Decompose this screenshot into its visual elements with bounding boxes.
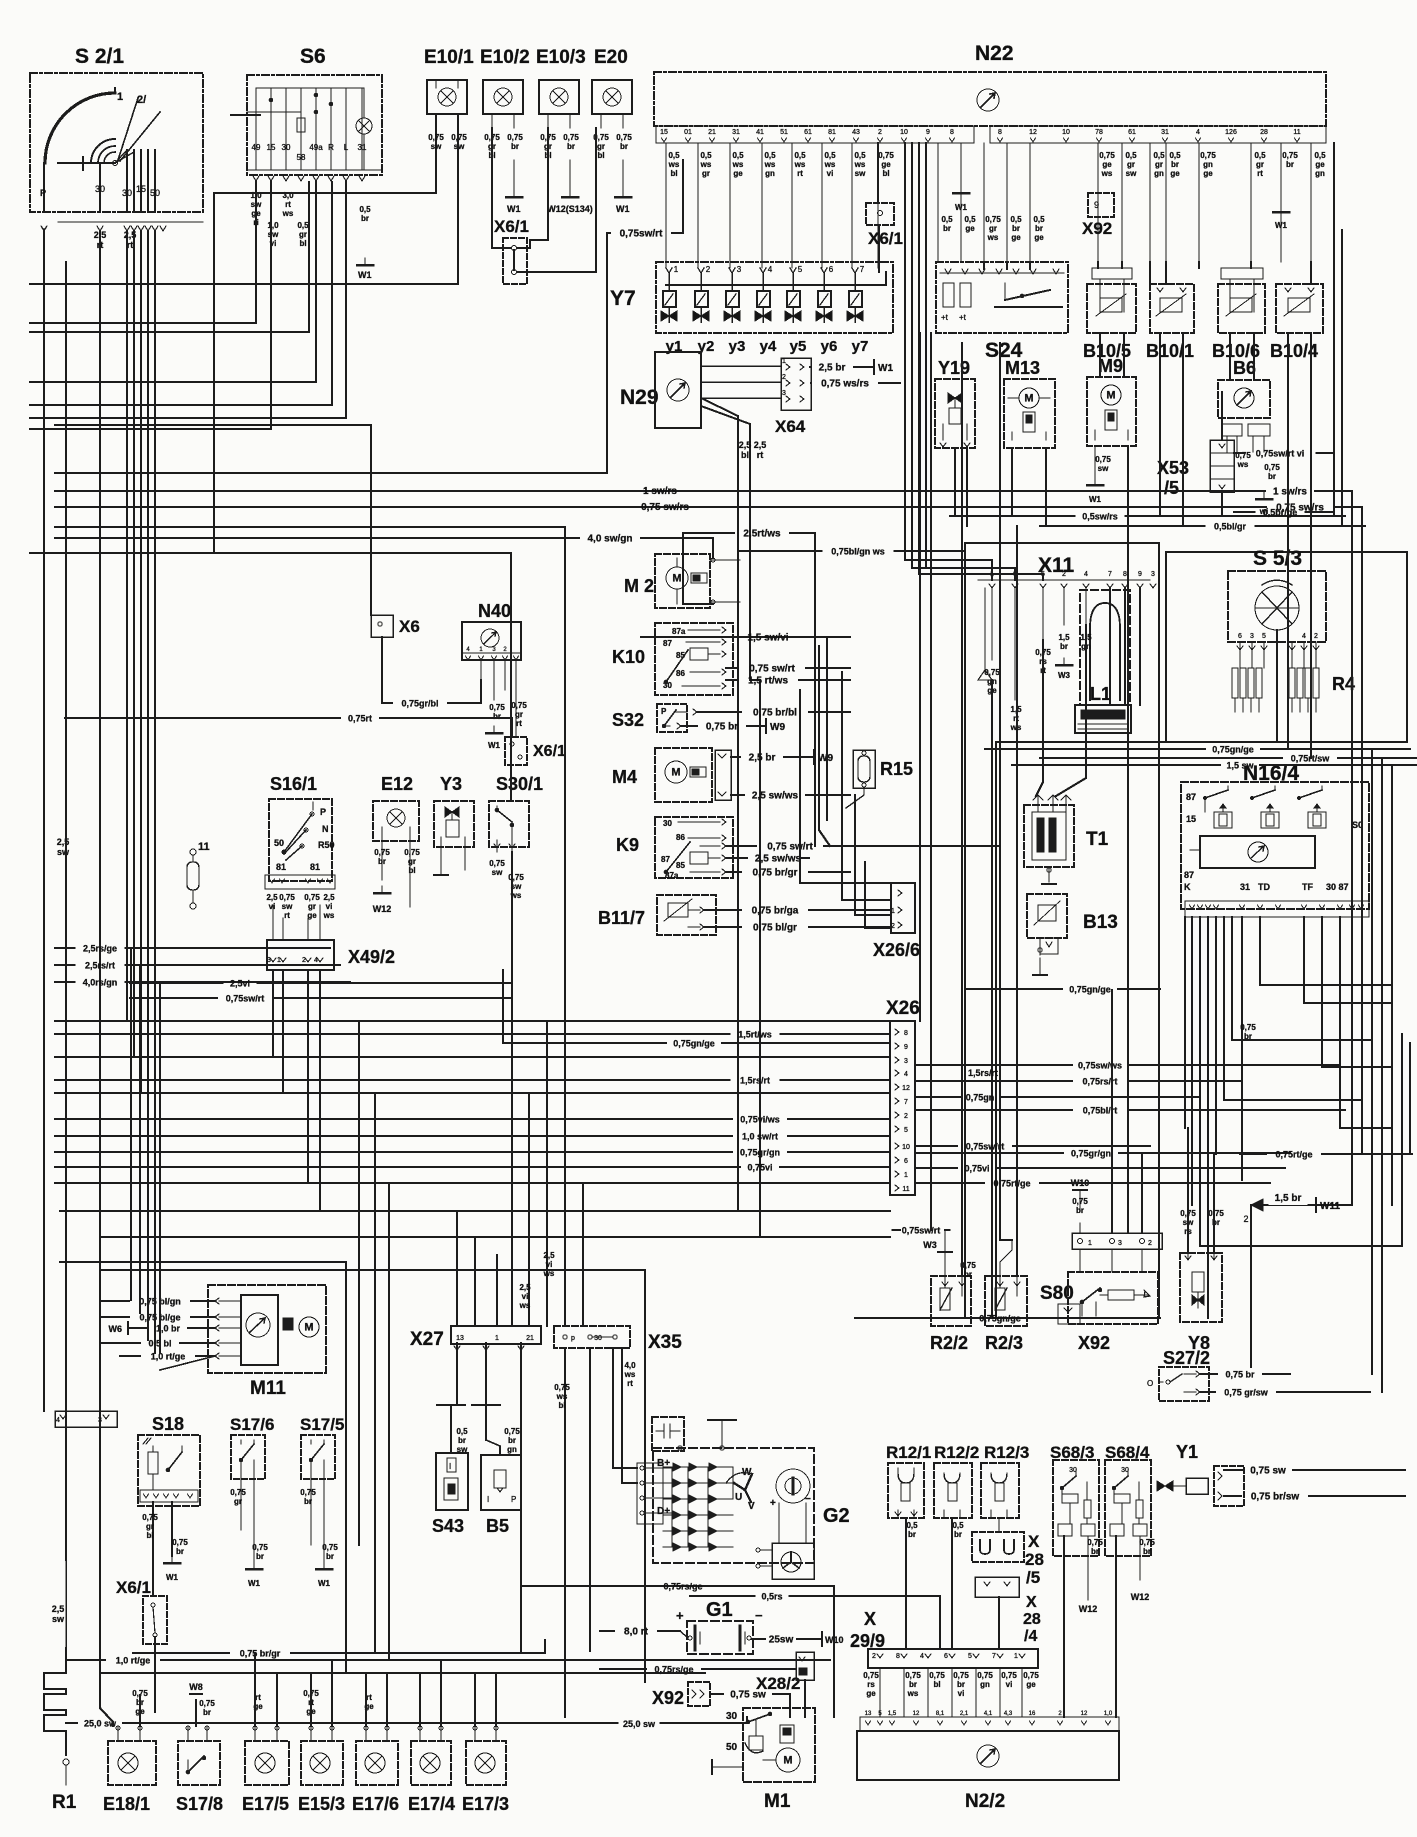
svg-text:0,75vi/ws: 0,75vi/ws xyxy=(740,1115,780,1125)
svg-text:87: 87 xyxy=(663,639,672,648)
svg-text:2,5rt/ws: 2,5rt/ws xyxy=(743,529,781,540)
svg-text:4,1: 4,1 xyxy=(984,1711,993,1717)
svg-text:ge: ge xyxy=(1026,1680,1036,1689)
svg-text:bl: bl xyxy=(146,1531,153,1540)
svg-text:0,75: 0,75 xyxy=(199,1699,215,1708)
svg-text:gr: gr xyxy=(1155,160,1163,169)
svg-text:3: 3 xyxy=(1151,571,1155,578)
svg-text:7: 7 xyxy=(904,1099,908,1106)
svg-text:28: 28 xyxy=(1023,1611,1041,1628)
svg-text:br: br xyxy=(1012,224,1020,233)
svg-text:M: M xyxy=(1024,393,1033,405)
svg-text:M1: M1 xyxy=(764,1791,791,1812)
svg-text:1: 1 xyxy=(277,957,281,964)
svg-text:0,5: 0,5 xyxy=(1033,215,1045,224)
svg-text:sw: sw xyxy=(282,902,293,911)
svg-text:0,75: 0,75 xyxy=(1200,151,1216,160)
svg-text:br: br xyxy=(1091,1547,1099,1556)
svg-text:ge: ge xyxy=(866,1689,876,1698)
svg-text:ws: ws xyxy=(1237,460,1249,469)
svg-text:9: 9 xyxy=(1138,571,1142,578)
svg-text:vi: vi xyxy=(827,169,834,178)
svg-text:bl: bl xyxy=(670,169,677,178)
svg-text:0,75: 0,75 xyxy=(428,133,444,142)
svg-text:ge: ge xyxy=(307,911,317,920)
svg-text:2,1: 2,1 xyxy=(960,1711,969,1717)
svg-text:0,75 sw: 0,75 sw xyxy=(730,1690,766,1701)
svg-text:2,5: 2,5 xyxy=(323,893,335,902)
svg-text:X6/1: X6/1 xyxy=(116,1578,151,1597)
svg-text:2,5 br: 2,5 br xyxy=(749,753,776,764)
svg-text:4: 4 xyxy=(466,647,470,653)
svg-text:W1: W1 xyxy=(507,204,521,214)
svg-text:0,75 sw: 0,75 sw xyxy=(1250,1466,1286,1477)
svg-text:0,5: 0,5 xyxy=(964,215,976,224)
svg-text:P: P xyxy=(320,807,326,817)
svg-text:0,5: 0,5 xyxy=(906,1521,918,1530)
svg-text:gr: gr xyxy=(597,142,605,151)
svg-text:1: 1 xyxy=(495,1335,499,1342)
svg-text:30: 30 xyxy=(122,188,132,198)
svg-text:5: 5 xyxy=(904,1127,908,1134)
svg-text:bl: bl xyxy=(408,866,415,875)
svg-text:ge: ge xyxy=(1203,169,1213,178)
svg-text:0,75 br/ga: 0,75 br/ga xyxy=(752,906,799,917)
svg-text:G2: G2 xyxy=(823,1505,850,1527)
svg-text:R1: R1 xyxy=(52,1792,77,1813)
svg-text:N29: N29 xyxy=(620,386,659,409)
svg-text:E12: E12 xyxy=(381,774,413,794)
svg-text:bl: bl xyxy=(299,239,306,248)
svg-text:0,75vi: 0,75vi xyxy=(964,1164,989,1174)
svg-text:X6/1: X6/1 xyxy=(868,229,903,248)
svg-text:O: O xyxy=(1147,1379,1153,1388)
svg-text:4: 4 xyxy=(314,957,318,964)
svg-text:ge: ge xyxy=(965,224,975,233)
svg-text:vi: vi xyxy=(522,1292,529,1301)
svg-text:31: 31 xyxy=(358,143,367,152)
svg-text:0,75: 0,75 xyxy=(489,859,505,868)
svg-text:0,75: 0,75 xyxy=(374,848,390,857)
svg-text:E18/1: E18/1 xyxy=(103,1794,150,1814)
svg-text:ge: ge xyxy=(1034,233,1044,242)
svg-text:2: 2 xyxy=(1314,633,1318,640)
svg-text:0,75gn/ge: 0,75gn/ge xyxy=(1069,985,1111,995)
svg-text:E20: E20 xyxy=(594,47,628,68)
svg-text:E10/1: E10/1 xyxy=(424,47,474,68)
svg-text:15: 15 xyxy=(136,184,146,194)
svg-text:0,75: 0,75 xyxy=(1264,463,1280,472)
svg-text:3: 3 xyxy=(492,647,496,653)
svg-text:+: + xyxy=(676,1608,684,1623)
svg-text:W12: W12 xyxy=(373,904,392,914)
svg-text:N: N xyxy=(322,824,329,834)
svg-text:0,75sw/ws: 0,75sw/ws xyxy=(1078,1061,1122,1071)
svg-text:sw: sw xyxy=(1098,464,1109,473)
svg-text:rt: rt xyxy=(627,1379,633,1388)
svg-text:W1: W1 xyxy=(488,741,501,750)
svg-text:0,75 bl/gr: 0,75 bl/gr xyxy=(753,923,797,934)
svg-text:5: 5 xyxy=(1262,633,1266,640)
svg-text:ge: ge xyxy=(1011,233,1021,242)
svg-text:S17/5: S17/5 xyxy=(300,1415,344,1434)
svg-text:TF: TF xyxy=(1302,882,1313,892)
svg-text:bl: bl xyxy=(741,450,749,460)
svg-text:7: 7 xyxy=(1108,571,1112,578)
svg-text:K10: K10 xyxy=(612,647,645,667)
svg-text:1,5 sw: 1,5 sw xyxy=(1226,761,1254,771)
svg-text:W1: W1 xyxy=(248,1579,261,1588)
svg-text:2: 2 xyxy=(1062,571,1066,578)
svg-text:50: 50 xyxy=(726,1742,738,1753)
svg-text:W11: W11 xyxy=(1320,1201,1340,1212)
svg-text:br: br xyxy=(493,712,501,721)
svg-text:2,5 sw/ws: 2,5 sw/ws xyxy=(755,854,802,865)
svg-text:58: 58 xyxy=(297,153,306,162)
svg-text:ws: ws xyxy=(987,233,999,242)
svg-text:rt: rt xyxy=(757,450,764,460)
svg-text:87: 87 xyxy=(1184,870,1194,880)
svg-text:0,75rt/ge: 0,75rt/ge xyxy=(1275,1150,1312,1160)
svg-text:ws: ws xyxy=(519,1301,531,1310)
svg-text:1: 1 xyxy=(782,358,786,365)
svg-text:E17/5: E17/5 xyxy=(242,1794,289,1814)
svg-text:0,5: 0,5 xyxy=(1153,151,1165,160)
svg-text:+t: +t xyxy=(959,313,967,322)
svg-text:M11: M11 xyxy=(250,1378,286,1399)
svg-text:X: X xyxy=(864,1609,876,1629)
svg-text:X: X xyxy=(1028,1532,1040,1551)
svg-text:M: M xyxy=(783,1755,792,1767)
svg-text:0,75: 0,75 xyxy=(554,1383,570,1392)
svg-text:61: 61 xyxy=(804,129,812,136)
svg-text:2,5: 2,5 xyxy=(266,893,278,902)
svg-text:gn: gn xyxy=(980,1680,990,1689)
svg-text:0,75: 0,75 xyxy=(172,1538,188,1547)
svg-text:0,5: 0,5 xyxy=(1314,151,1326,160)
svg-text:4,0rs/gn: 4,0rs/gn xyxy=(83,978,118,988)
svg-text:0,75gn/ge: 0,75gn/ge xyxy=(979,1314,1021,1324)
svg-text:br: br xyxy=(1060,642,1068,651)
svg-text:1,5: 1,5 xyxy=(1058,633,1070,642)
svg-text:rt: rt xyxy=(516,719,522,728)
svg-text:30: 30 xyxy=(282,143,291,152)
svg-text:30: 30 xyxy=(726,1711,738,1722)
svg-text:N22: N22 xyxy=(975,42,1014,65)
svg-text:B10/1: B10/1 xyxy=(1146,341,1194,361)
svg-text:ge: ge xyxy=(733,169,743,178)
svg-text:25sw: 25sw xyxy=(769,1635,794,1646)
svg-text:T1: T1 xyxy=(1086,829,1109,850)
svg-text:S16/1: S16/1 xyxy=(270,774,317,794)
svg-text:0,75gn/ge: 0,75gn/ge xyxy=(673,1039,715,1049)
svg-text:0,5: 0,5 xyxy=(700,151,712,160)
svg-text:y4: y4 xyxy=(760,338,777,355)
svg-text:0,75: 0,75 xyxy=(489,703,505,712)
svg-text:gr: gr xyxy=(1256,160,1264,169)
svg-text:gn: gn xyxy=(507,1445,517,1454)
svg-text:X26: X26 xyxy=(886,998,920,1019)
svg-text:12: 12 xyxy=(902,1085,910,1092)
svg-text:0,75: 0,75 xyxy=(451,133,467,142)
svg-text:1: 1 xyxy=(479,647,483,653)
svg-text:0,75: 0,75 xyxy=(142,1513,158,1522)
svg-text:X49/2: X49/2 xyxy=(348,947,395,967)
svg-text:0,75: 0,75 xyxy=(863,1671,879,1680)
svg-text:6: 6 xyxy=(944,1653,948,1660)
svg-text:5: 5 xyxy=(968,1653,972,1660)
svg-text:4,3: 4,3 xyxy=(1004,1711,1013,1717)
svg-text:W8: W8 xyxy=(189,1682,203,1692)
svg-text:0,75: 0,75 xyxy=(929,1671,945,1680)
svg-text:87: 87 xyxy=(1186,792,1196,802)
svg-text:78: 78 xyxy=(1095,129,1103,136)
svg-text:P: P xyxy=(40,188,46,198)
svg-text:M: M xyxy=(1106,390,1115,402)
svg-text:S18: S18 xyxy=(152,1414,184,1434)
svg-text:30: 30 xyxy=(594,1335,602,1342)
svg-text:E17/3: E17/3 xyxy=(462,1794,509,1814)
svg-text:2,5: 2,5 xyxy=(52,1604,65,1614)
svg-text:0,75: 0,75 xyxy=(1001,1671,1017,1680)
svg-text:M9: M9 xyxy=(1098,356,1123,376)
svg-text:0,75: 0,75 xyxy=(404,848,420,857)
svg-text:br: br xyxy=(511,142,519,151)
svg-text:2,5 br: 2,5 br xyxy=(819,363,846,374)
svg-text:sw: sw xyxy=(57,847,70,857)
svg-text:sw: sw xyxy=(855,169,866,178)
svg-text:br: br xyxy=(1035,224,1043,233)
svg-text:12: 12 xyxy=(913,1711,920,1717)
svg-text:6: 6 xyxy=(1238,633,1242,640)
svg-text:0,75gn: 0,75gn xyxy=(966,1093,995,1103)
svg-text:y6: y6 xyxy=(821,338,838,355)
svg-text:E10/3: E10/3 xyxy=(536,47,586,68)
svg-text:ws: ws xyxy=(824,160,836,169)
svg-text:0,75: 0,75 xyxy=(1208,1209,1224,1218)
svg-text:br: br xyxy=(943,224,951,233)
svg-text:3: 3 xyxy=(782,390,786,397)
svg-text:3: 3 xyxy=(1250,633,1254,640)
svg-text:M: M xyxy=(672,573,681,585)
svg-text:8: 8 xyxy=(950,129,954,136)
svg-text:0,5: 0,5 xyxy=(668,151,680,160)
svg-text:8: 8 xyxy=(1123,571,1127,578)
svg-text:X92: X92 xyxy=(652,1688,684,1708)
svg-text:B5: B5 xyxy=(486,1516,509,1536)
svg-text:br: br xyxy=(326,1552,334,1561)
svg-text:W9: W9 xyxy=(770,722,785,733)
svg-text:86: 86 xyxy=(676,669,685,678)
svg-text:11: 11 xyxy=(1293,129,1300,136)
svg-text:ws: ws xyxy=(794,160,806,169)
svg-text:P: P xyxy=(511,1495,516,1504)
svg-text:1,0: 1,0 xyxy=(1104,1711,1113,1717)
svg-text:R15: R15 xyxy=(880,759,913,779)
svg-text:W1: W1 xyxy=(1275,221,1288,230)
svg-text:X53: X53 xyxy=(1157,458,1189,478)
svg-text:4: 4 xyxy=(768,265,773,274)
svg-text:0,75gr/gn: 0,75gr/gn xyxy=(1071,1149,1111,1159)
svg-text:X26/6: X26/6 xyxy=(873,940,920,960)
svg-text:4: 4 xyxy=(1084,571,1088,578)
svg-text:4: 4 xyxy=(904,1071,908,1078)
svg-text:5: 5 xyxy=(798,265,803,274)
svg-text:85: 85 xyxy=(676,861,685,870)
svg-text:bl: bl xyxy=(933,1680,940,1689)
svg-text:R12/1: R12/1 xyxy=(886,1443,931,1462)
svg-text:0,75: 0,75 xyxy=(985,215,1001,224)
svg-text:0,75: 0,75 xyxy=(1282,151,1298,160)
svg-text:0,5: 0,5 xyxy=(1169,151,1181,160)
svg-text:gn: gn xyxy=(1154,169,1164,178)
svg-text:br: br xyxy=(304,1497,312,1506)
svg-text:0,75: 0,75 xyxy=(1099,151,1115,160)
svg-text:1 sw/rs: 1 sw/rs xyxy=(643,486,677,497)
svg-text:vi: vi xyxy=(546,1260,553,1269)
svg-text:M: M xyxy=(304,1322,313,1334)
svg-text:X92: X92 xyxy=(1078,1333,1110,1353)
svg-text:6: 6 xyxy=(904,1158,908,1165)
svg-text:br: br xyxy=(1143,1547,1151,1556)
svg-text:81: 81 xyxy=(276,862,286,872)
svg-text:1: 1 xyxy=(904,1172,908,1179)
svg-text:br: br xyxy=(620,142,628,151)
svg-text:W12: W12 xyxy=(1131,1592,1150,1602)
svg-text:0,5: 0,5 xyxy=(456,1427,468,1436)
svg-text:M4: M4 xyxy=(612,767,637,787)
svg-text:0,5: 0,5 xyxy=(359,205,371,214)
svg-text:br: br xyxy=(361,214,369,223)
svg-text:8: 8 xyxy=(904,1030,908,1037)
svg-text:br: br xyxy=(957,1680,965,1689)
svg-text:0,75: 0,75 xyxy=(300,1488,316,1497)
svg-text:p: p xyxy=(571,1335,575,1342)
svg-text:ws: ws xyxy=(556,1392,568,1401)
svg-text:rt: rt xyxy=(284,911,290,920)
svg-text:br: br xyxy=(954,1530,962,1539)
svg-text:W1: W1 xyxy=(318,1579,331,1588)
svg-text:0,75sw/rt: 0,75sw/rt xyxy=(226,994,265,1004)
svg-text:R: R xyxy=(328,143,334,152)
svg-text:ws: ws xyxy=(764,160,776,169)
svg-text:br: br xyxy=(1286,160,1294,169)
svg-text:W6: W6 xyxy=(109,1324,123,1334)
svg-text:0,75: 0,75 xyxy=(953,1671,969,1680)
svg-text:2: 2 xyxy=(904,1113,908,1120)
svg-text:7: 7 xyxy=(992,1653,996,1660)
svg-text:0,75bl/gn ws: 0,75bl/gn ws xyxy=(831,547,885,557)
svg-text:S17/8: S17/8 xyxy=(176,1794,223,1814)
svg-text:R2/3: R2/3 xyxy=(985,1333,1023,1353)
svg-text:41: 41 xyxy=(756,129,764,136)
svg-text:S 2/1: S 2/1 xyxy=(75,45,124,68)
svg-text:12: 12 xyxy=(1029,129,1037,136)
svg-text:vi: vi xyxy=(269,902,276,911)
svg-text:0,75rt: 0,75rt xyxy=(348,714,372,724)
svg-text:ge: ge xyxy=(1102,160,1112,169)
svg-text:2,5: 2,5 xyxy=(57,837,70,847)
svg-text:sw: sw xyxy=(457,1445,468,1454)
svg-text:br: br xyxy=(176,1547,184,1556)
svg-text:W9: W9 xyxy=(818,753,833,764)
svg-text:L1: L1 xyxy=(1090,684,1111,704)
svg-text:2: 2 xyxy=(878,129,882,136)
svg-text:S30/1: S30/1 xyxy=(496,774,543,794)
svg-text:9: 9 xyxy=(1094,200,1099,210)
svg-text:X6/1: X6/1 xyxy=(494,217,529,236)
svg-text:51: 51 xyxy=(780,129,788,136)
svg-text:0,75: 0,75 xyxy=(1095,455,1111,464)
svg-text:8: 8 xyxy=(896,1653,900,1660)
svg-text:0,5sw/rs: 0,5sw/rs xyxy=(1082,512,1118,522)
svg-text:21: 21 xyxy=(526,1335,534,1342)
svg-text:81: 81 xyxy=(828,129,836,136)
svg-text:gr: gr xyxy=(308,902,316,911)
svg-text:I: I xyxy=(487,1495,489,1504)
svg-text:0,75 sw/rt: 0,75 sw/rt xyxy=(767,842,813,853)
svg-text:W1: W1 xyxy=(878,363,893,374)
svg-text:E15/3: E15/3 xyxy=(298,1794,345,1814)
svg-text:1: 1 xyxy=(1088,1240,1092,1247)
svg-text:0,75 br/gr: 0,75 br/gr xyxy=(240,1649,281,1659)
svg-text:ws: ws xyxy=(732,160,744,169)
svg-text:0,75: 0,75 xyxy=(504,1427,520,1436)
svg-text:/5: /5 xyxy=(1164,478,1179,498)
svg-text:R12/2: R12/2 xyxy=(934,1443,979,1462)
svg-text:br: br xyxy=(508,1436,516,1445)
svg-text:0,75: 0,75 xyxy=(977,1671,993,1680)
svg-text:U: U xyxy=(735,1492,742,1503)
svg-text:+t: +t xyxy=(941,313,949,322)
svg-text:vi: vi xyxy=(326,902,333,911)
svg-text:ws: ws xyxy=(907,1689,919,1698)
svg-text:+: + xyxy=(770,1498,776,1509)
svg-text:E17/6: E17/6 xyxy=(352,1794,399,1814)
svg-text:−: − xyxy=(755,1608,763,1623)
svg-text:81: 81 xyxy=(310,862,320,872)
svg-text:/4: /4 xyxy=(1024,1628,1037,1645)
svg-text:br: br xyxy=(567,142,575,151)
svg-text:2,5: 2,5 xyxy=(519,1283,531,1292)
svg-text:0,75 br: 0,75 br xyxy=(1225,1370,1255,1380)
svg-text:0,75: 0,75 xyxy=(878,151,894,160)
svg-text:gr: gr xyxy=(1127,160,1135,169)
svg-text:X27: X27 xyxy=(410,1329,444,1350)
svg-text:4,0: 4,0 xyxy=(624,1361,636,1370)
svg-text:2: 2 xyxy=(1148,1240,1152,1247)
svg-text:2,5rs/ge: 2,5rs/ge xyxy=(83,944,117,954)
svg-text:ws: ws xyxy=(543,1269,555,1278)
svg-text:N40: N40 xyxy=(478,601,511,621)
svg-text:29/9: 29/9 xyxy=(850,1631,885,1651)
svg-text:P: P xyxy=(661,707,667,716)
svg-text:0,75: 0,75 xyxy=(1087,1538,1103,1547)
svg-text:gr: gr xyxy=(702,169,710,178)
svg-text:vi: vi xyxy=(1006,1680,1013,1689)
svg-text:R2/2: R2/2 xyxy=(930,1333,968,1353)
svg-text:0,5: 0,5 xyxy=(1254,151,1266,160)
svg-text:0,75: 0,75 xyxy=(1023,1671,1039,1680)
svg-text:8: 8 xyxy=(998,129,1002,136)
svg-text:0,75: 0,75 xyxy=(1240,1023,1256,1032)
svg-text:3: 3 xyxy=(904,1058,908,1065)
svg-text:4: 4 xyxy=(1302,633,1306,640)
svg-text:X6/1: X6/1 xyxy=(533,743,566,760)
svg-text:R12/3: R12/3 xyxy=(984,1443,1029,1462)
svg-text:1,5rs/rt: 1,5rs/rt xyxy=(740,1076,770,1086)
svg-text:30: 30 xyxy=(663,819,672,828)
